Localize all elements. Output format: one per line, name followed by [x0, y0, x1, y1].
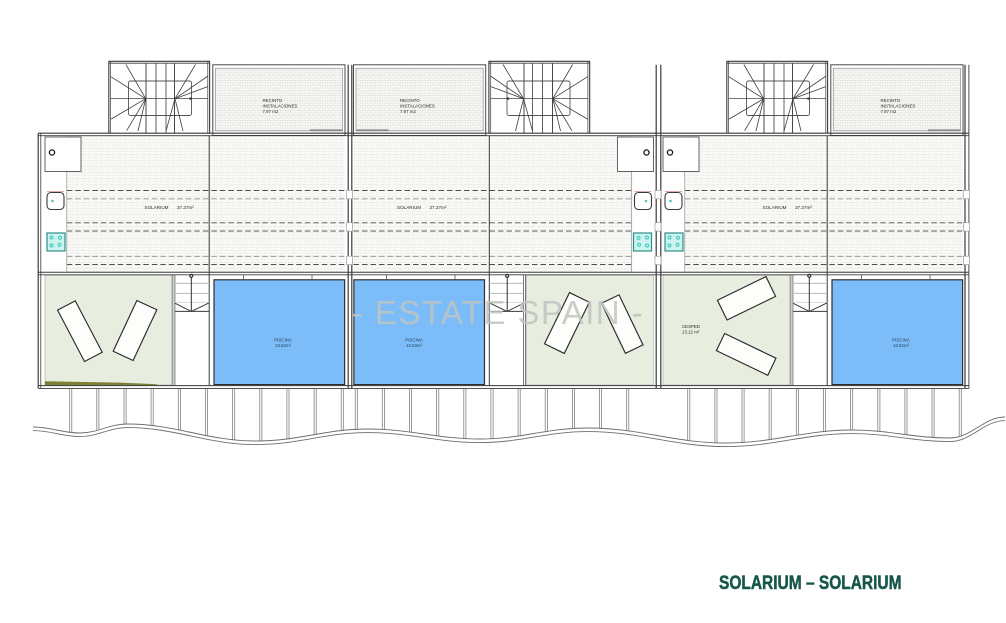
svg-text:RECINTO: RECINTO: [263, 98, 283, 103]
svg-text:PISCINA: PISCINA: [405, 337, 423, 342]
svg-text:37.37m²: 37.37m²: [430, 205, 447, 210]
svg-text:13.12 m²: 13.12 m²: [682, 329, 700, 334]
svg-text:SOLARIUM: SOLARIUM: [397, 205, 421, 210]
svg-text:PISCINA: PISCINA: [274, 337, 292, 342]
svg-text:37.37m²: 37.37m²: [177, 205, 194, 210]
svg-text:RECINTO: RECINTO: [881, 98, 901, 103]
svg-text:SOLARIUM – SOLARIUM: SOLARIUM – SOLARIUM: [719, 571, 902, 593]
svg-text:13.62m²: 13.62m²: [406, 343, 423, 348]
svg-text:- ESTATE SPAIN -: - ESTATE SPAIN -: [352, 294, 644, 331]
svg-text:SOLARIUM: SOLARIUM: [763, 205, 787, 210]
svg-text:37.37m²: 37.37m²: [795, 205, 812, 210]
svg-text:CESPED: CESPED: [682, 324, 700, 329]
svg-text:SOLARIUM: SOLARIUM: [145, 205, 169, 210]
svg-text:13.62m²: 13.62m²: [893, 343, 910, 348]
svg-text:13.62m²: 13.62m²: [275, 343, 292, 348]
svg-text:7.97 m2: 7.97 m2: [881, 109, 897, 114]
svg-text:INSTALACIONES: INSTALACIONES: [881, 104, 916, 109]
svg-text:INSTALACIONES: INSTALACIONES: [263, 104, 298, 109]
svg-text:RECINTO: RECINTO: [400, 98, 420, 103]
svg-text:7.97 m2: 7.97 m2: [400, 109, 416, 114]
svg-text:PISCINA: PISCINA: [892, 337, 910, 342]
svg-text:INSTALACIONES: INSTALACIONES: [400, 104, 435, 109]
svg-text:7.97 m2: 7.97 m2: [263, 109, 279, 114]
